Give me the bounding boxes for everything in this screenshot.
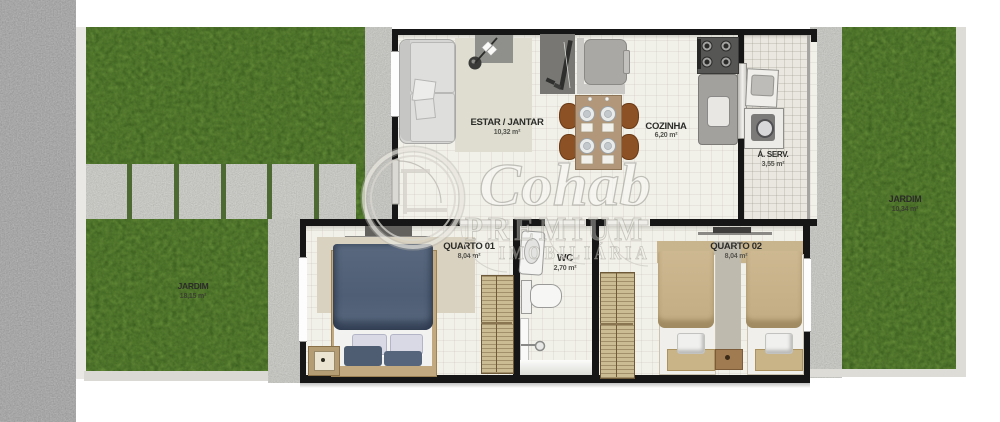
svg-text:IMOBILIÁRIA: IMOBILIÁRIA [499,242,651,264]
svg-text:Cohab: Cohab [479,152,651,218]
